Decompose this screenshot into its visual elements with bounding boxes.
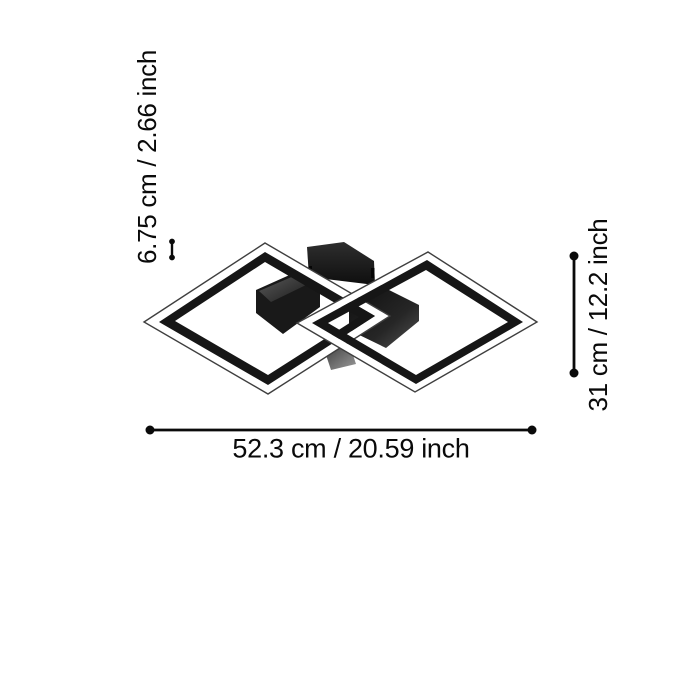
product-dimension-diagram: 6.75 cm / 2.66 inch 31 cm / 12.2 inch 52…: [0, 0, 700, 700]
width-dimension-label: 52.3 cm / 20.59 inch: [232, 436, 469, 463]
height-extent-marker: [169, 239, 175, 261]
depth-dimension-line: [570, 252, 579, 378]
depth-dimension-label: 31 cm / 12.2 inch: [585, 219, 611, 412]
height-dimension-label: 6.75 cm / 2.66 inch: [134, 50, 160, 264]
